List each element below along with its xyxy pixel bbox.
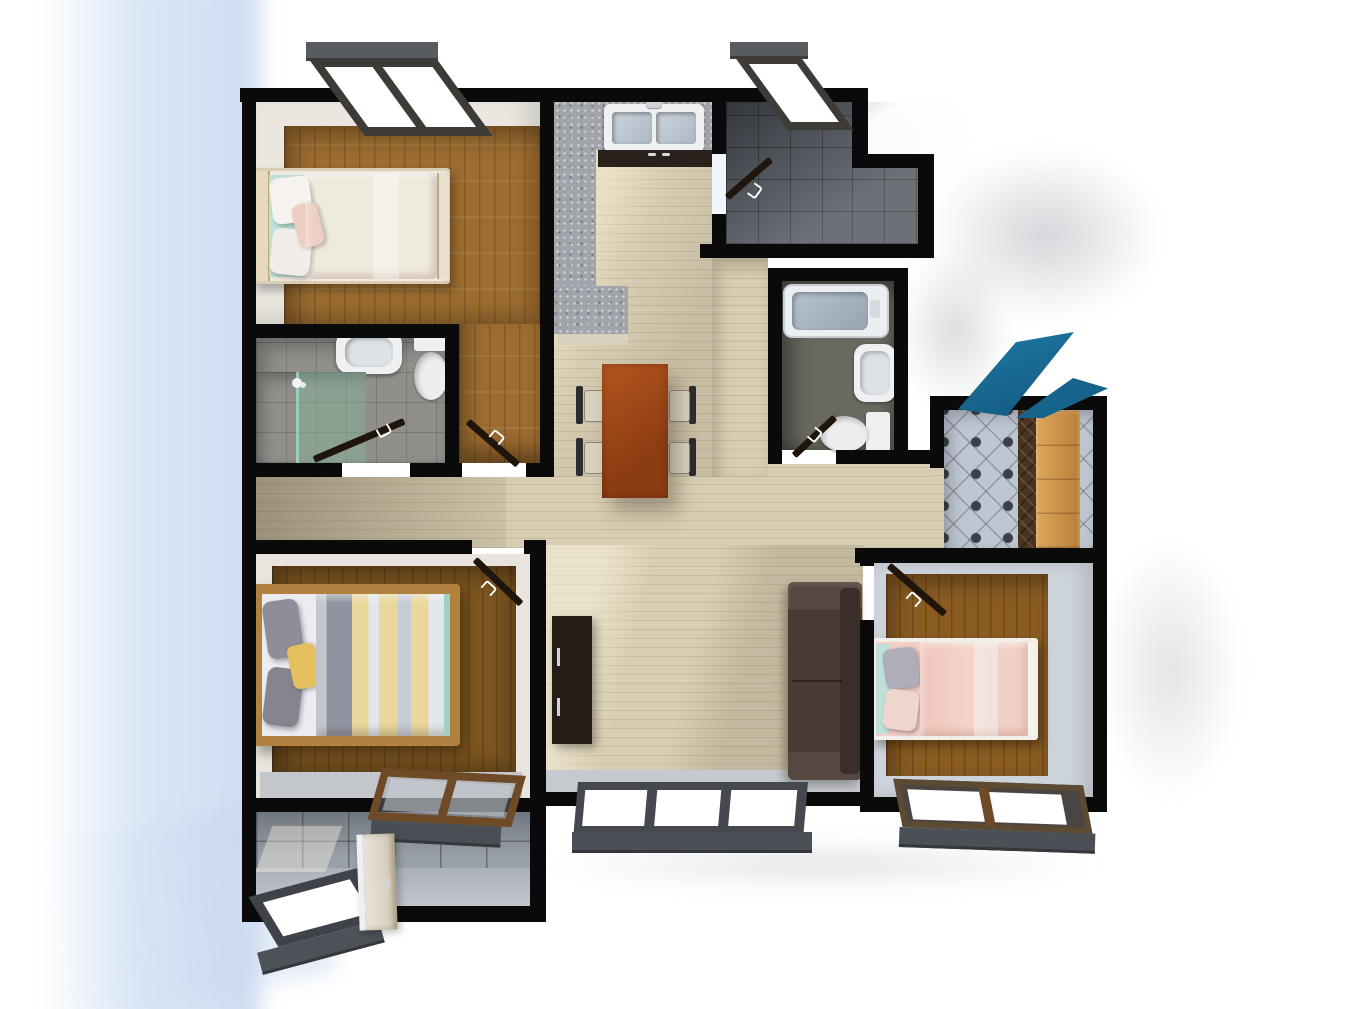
bed1-headboard [255,171,270,281]
chair-seat [669,442,690,474]
sofa-seat-seam [792,680,842,682]
wall-entry-right [530,798,546,922]
wall-right-lower [1093,396,1107,811]
wall-corridor-right [540,324,554,477]
bed3-footboard [1028,642,1034,736]
floor-plan-render [0,0,1345,1009]
bed-master-duvet [316,594,450,736]
bed3-pillow-2 [882,688,921,732]
wall-bed3-left-b [860,620,874,812]
hall-strip-below-bath2 [768,464,932,477]
kitchen-counter-left-arm [554,150,596,288]
entry-door-open [356,833,397,930]
bed1-duvet [305,173,437,279]
bed1-footboard [437,173,449,279]
dining-chair-3 [666,386,696,424]
wall-master-right [530,540,546,806]
chair-seat [669,390,690,422]
window-pane [582,790,647,826]
kitchen-cabinet-knob-2 [662,153,670,156]
chair-frame [689,386,696,424]
window-frame [573,782,808,834]
kitchen-counter-block [550,286,628,334]
kitchen-counter-block-face [558,334,628,345]
entry-door-handle [386,878,390,890]
sofa [788,582,862,780]
window-pane-glass [382,779,447,814]
wall-bath2-bottom-b [836,450,932,464]
wall-utility-left [930,396,944,468]
wall-bath3-south-a [242,463,342,477]
dining-chair-4 [666,438,696,476]
bathroom3-toilet-bowl [414,352,448,400]
window-frame [893,779,1092,834]
window-pane-glass [447,782,512,817]
bathroom3-toilet-tank [414,336,446,351]
bathtub-faucet-icon [870,300,880,318]
wall-bath2-left [768,268,782,464]
wall-bath1-left-b [712,214,726,252]
wall-left-outer [242,88,256,922]
chair-frame [576,386,583,424]
wall-master-top-a [242,540,472,554]
window-bedroom3 [883,778,1091,851]
wall-bed1-kitchen [540,102,554,324]
bathtub-water [792,292,868,330]
bed-master-foot-teal [444,594,450,736]
window-frame [367,768,526,827]
wardrobe-side [1018,408,1036,548]
wall-corridor-left [445,324,459,477]
bathroom3-sink-basin [345,337,393,367]
window-frame [308,58,493,136]
wall-bed3-left-a [860,548,874,566]
wall-bath2-top [768,268,908,281]
console-handle-1 [557,648,560,666]
bed1-duvet-fold [373,173,399,279]
wardrobe-front [1036,408,1080,548]
wall-bath1-bottom [700,244,934,258]
chair-frame [576,438,583,476]
window-bedroom1 [306,42,438,134]
tv-console [552,616,592,744]
window-bathroom1 [730,42,808,132]
window-front-face [572,832,812,853]
bed1 [252,168,450,284]
shower-head-icon [292,378,302,388]
window-living [572,780,812,850]
wall-bath3-south-b [410,463,462,477]
dining-table [602,364,668,498]
wall-bath1-left-a [712,102,726,154]
wall-bed3-top [855,548,1107,563]
console-handle-2 [557,698,560,716]
hall-strip-east-floor [712,258,768,477]
bathroom2-toilet-tank [866,412,890,452]
kitchen-sink-basin-right [656,112,696,144]
window-pane [749,64,839,122]
sofa-backrest [840,588,860,774]
bed3 [872,638,1038,740]
window-pane [907,789,985,822]
kitchen-sink-basin-left [612,112,652,144]
bed3-pillow-1 [881,646,920,690]
bed3-duvet-fold [974,642,998,736]
wall-corridor-south-stub [526,463,554,477]
wall-right-upper [918,154,934,258]
chair-frame [689,438,696,476]
wall-bed1-bottom [242,324,459,338]
shadow-gray-right-mid [1100,540,1240,800]
window-pane [654,790,721,826]
window-pane [728,790,797,826]
window-pane [989,792,1067,825]
kitchen-cabinet-knob-1 [648,153,656,156]
wall-bath2-bottom-a [768,450,782,464]
hallway-shadow [256,477,506,548]
bathroom2-sink-basin [860,351,890,395]
wall-bath2-right [894,268,908,464]
bed-master [252,584,460,746]
